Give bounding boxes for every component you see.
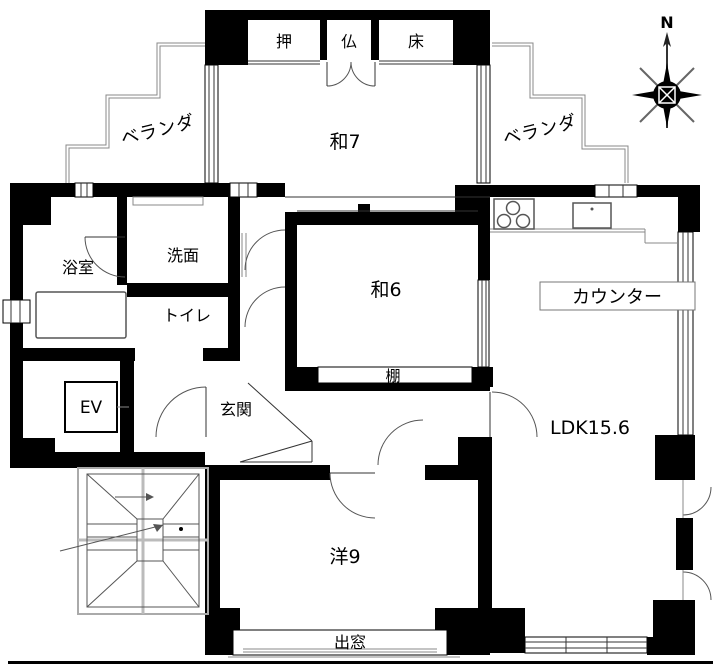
bathroom-label: 浴室: [62, 258, 94, 277]
toilet-label: トイレ: [163, 306, 211, 325]
wall-segment: [478, 223, 490, 280]
window: [205, 65, 218, 183]
wall-segment: [453, 10, 490, 65]
window: [75, 183, 93, 197]
shelf-label: 棚: [385, 367, 400, 385]
genkan-label: 玄関: [220, 400, 252, 419]
stair-up-line: [60, 525, 163, 551]
wall-segment: [23, 197, 51, 225]
ldk-label: LDK15.6: [550, 417, 630, 439]
wall-segment: [257, 183, 285, 197]
washitsu7-label: 和7: [329, 131, 360, 153]
oshiire-label: 押: [276, 32, 292, 51]
door-arc: [156, 387, 206, 437]
wall-segment: [205, 10, 248, 65]
wall-segment: [117, 197, 127, 285]
wall-segment: [285, 212, 297, 367]
stair-diagonal: [87, 561, 137, 607]
ground-line: [8, 661, 713, 664]
youshitsu9-label: 洋9: [329, 546, 360, 568]
wall-segment: [285, 212, 470, 225]
floor-plan-drawing: N ベランダ ベランダ 押 仏 床 和7 和6 LDK15.6 洋9 浴室 洗面…: [0, 0, 723, 670]
floor-plan: N ベランダ ベランダ 押 仏 床 和7 和6 LDK15.6 洋9 浴室 洗面…: [0, 0, 723, 670]
wall-segment: [93, 183, 230, 197]
wall-segment: [10, 183, 23, 468]
compass: N: [632, 13, 702, 128]
wall-segment: [435, 608, 490, 632]
butsudan-label: 仏: [341, 32, 357, 51]
stove-burner: [507, 202, 520, 215]
verandas: [66, 43, 628, 183]
sink-drain: [591, 208, 594, 211]
counter-label: カウンター: [572, 287, 662, 308]
veranda-left-label: ベランダ: [119, 111, 198, 150]
veranda-right-outline: [492, 43, 628, 183]
wall-segment: [647, 637, 695, 655]
labels: ベランダ ベランダ 押 仏 床 和7 和6 LDK15.6 洋9 浴室 洗面 ト…: [62, 32, 662, 652]
wall-segment: [228, 183, 240, 361]
door-arc: [330, 473, 375, 518]
wall-segment: [285, 367, 318, 383]
washitsu6-label: 和6: [370, 279, 401, 301]
door-arc: [492, 392, 537, 437]
window: [678, 232, 693, 435]
wall-segment: [10, 452, 205, 468]
wall-segment: [447, 632, 490, 655]
wall-segment: [10, 438, 55, 452]
stair-diagonal: [163, 561, 199, 607]
wall-segment: [205, 608, 240, 632]
wall-segment: [425, 465, 490, 480]
window: [478, 280, 489, 367]
door-arc: [683, 487, 711, 515]
stove-burner: [517, 215, 530, 228]
door-arc: [351, 62, 375, 86]
stair-dot: [179, 527, 183, 531]
window: [525, 637, 647, 653]
shoe-cabinet: [240, 441, 312, 462]
stove-burner: [498, 215, 511, 228]
bathtub: [36, 292, 126, 338]
window: [477, 65, 490, 183]
stair-arrowhead: [146, 493, 154, 501]
door-arc: [245, 287, 285, 327]
door-arc: [245, 230, 285, 270]
stair-diagonal: [163, 474, 199, 519]
wall-segment: [23, 348, 135, 361]
doors: [85, 62, 711, 600]
shoe-cabinet: [248, 383, 312, 441]
wall-segment: [127, 283, 240, 297]
door-arc: [683, 572, 711, 600]
window: [230, 183, 257, 197]
wall-segment: [478, 470, 492, 615]
compass-north-label: N: [660, 13, 673, 32]
stair-up-arrowhead: [153, 524, 163, 532]
elevator-label: EV: [80, 398, 103, 418]
wall-segment: [358, 204, 370, 214]
wall-segment: [205, 465, 330, 480]
kitchen-sink: [573, 203, 611, 228]
wall-segment: [655, 435, 695, 480]
staircase: [60, 468, 208, 614]
window: [595, 185, 637, 197]
wall-segment: [472, 367, 490, 391]
tokonoma-label: 床: [408, 32, 424, 51]
washroom-label: 洗面: [167, 246, 199, 265]
wall-segment: [678, 185, 700, 232]
wall-segment: [676, 518, 693, 570]
wall-segment: [455, 185, 595, 197]
door-arc: [327, 62, 351, 86]
veranda-right-label: ベランダ: [501, 111, 580, 150]
door-arc: [378, 420, 423, 465]
washroom-niche: [133, 197, 203, 205]
wall-segment: [205, 632, 233, 655]
window: [3, 300, 30, 323]
wall-segment: [203, 348, 240, 361]
bay-window-label: 出窓: [334, 633, 366, 652]
